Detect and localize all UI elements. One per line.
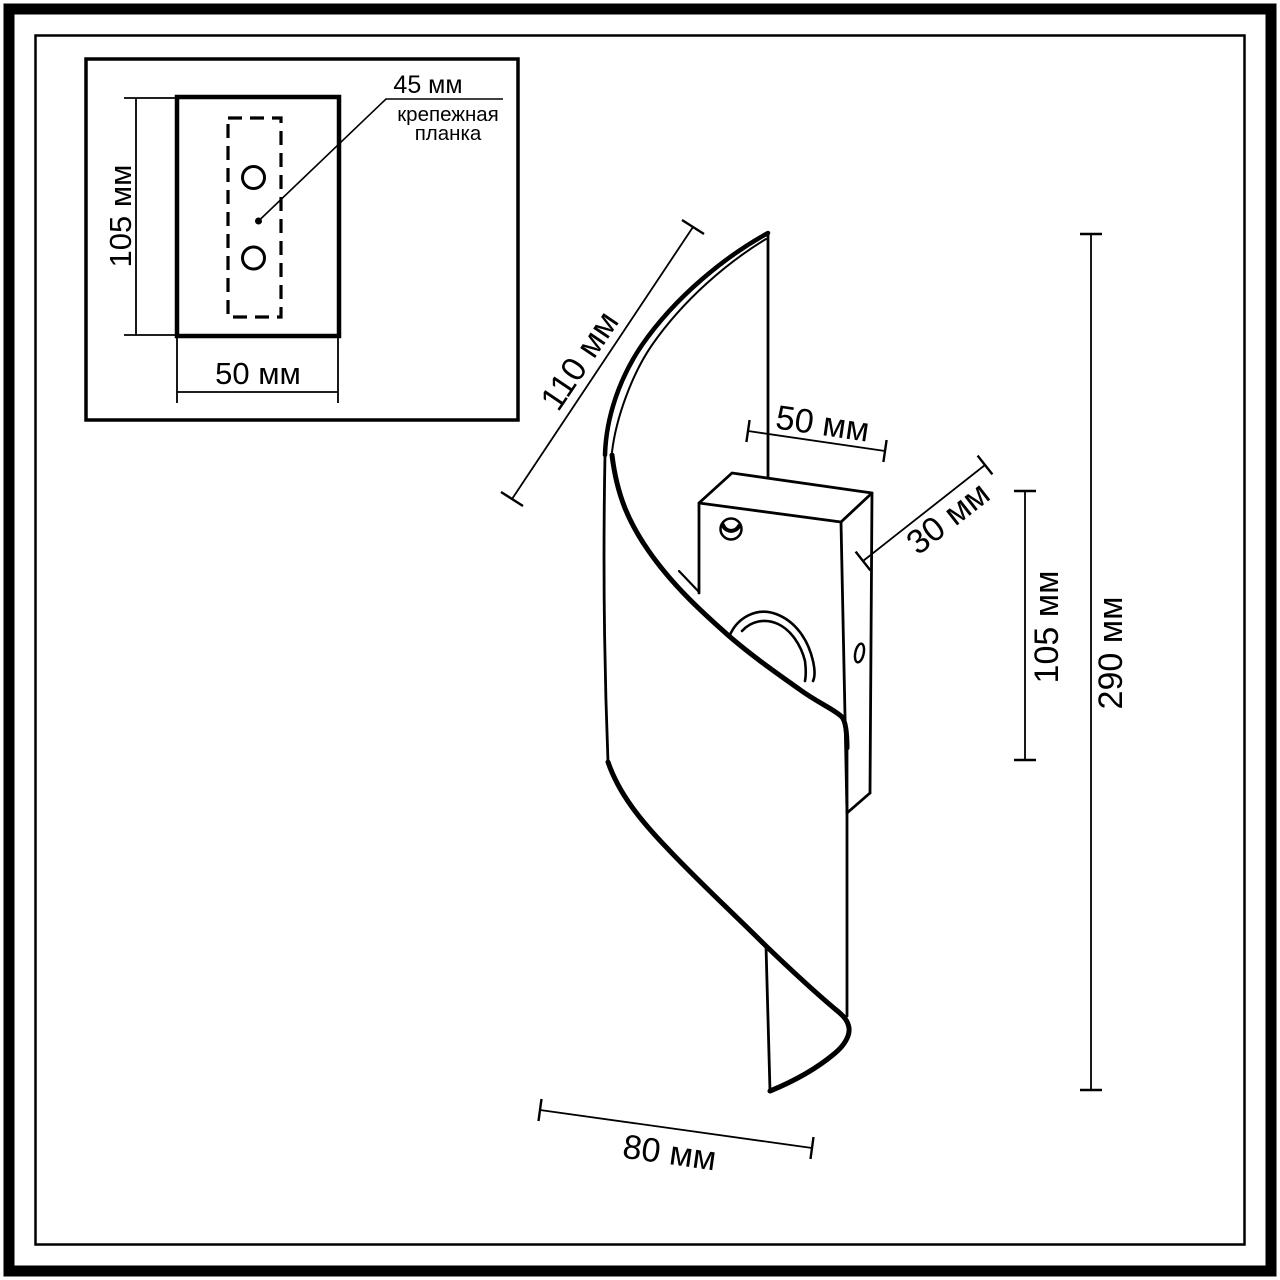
box-back-right-edge [870,493,872,793]
inset-plate-width-label: 50 мм [215,356,301,391]
technical-drawing-page: 105 мм 50 мм 45 мм крепежная планка [0,0,1280,1280]
shade-left-silhouette [604,455,608,762]
backplate-depth-dimension: 30 мм [856,456,997,571]
total-height-dimension: 290 мм [1080,234,1130,1090]
drawing-canvas: 105 мм 50 мм 45 мм крепежная планка [0,0,1280,1280]
shade-lower-front-edge [608,762,849,1091]
shade-bottom-tip-edge [766,946,770,1091]
backplate-height-dimension: 105 мм [1014,491,1066,760]
dim-label-backplate-height: 105 мм [1028,571,1066,684]
box-top-face [699,473,872,522]
side-cable-hole [853,643,865,663]
inset-height-dimension: 105 мм [103,98,177,335]
shade-top-edge-outer [605,233,768,455]
hole-spacing-label: 45 мм [393,71,462,99]
dim-label-total-height: 290 мм [1092,597,1130,710]
backplate-box [679,473,872,813]
shade-top-edge-inner [612,239,766,452]
dim-line [512,227,693,499]
mounting-plate-outline [177,97,339,336]
sconce-main-view [604,233,872,1091]
screw-hole-bottom [243,247,265,269]
screw-slot [723,525,739,531]
outer-frame-border [9,9,1271,1271]
shade-upper-front-edge [612,455,847,748]
screw-hole-top [243,167,265,189]
dim-label-shade-width: 80 мм [620,1128,718,1179]
inset-width-dimension: 50 мм [177,338,338,403]
shade-length-dimension: 110 мм [501,220,704,506]
inset-plate-height-label: 105 мм [103,165,138,268]
dim-label-backplate-width: 50 мм [773,399,872,450]
mounting-bar-dashed-outline [228,118,281,317]
dim-label-backplate-depth: 30 мм [899,474,996,562]
mounting-bar-caption-line2: планка [415,122,482,145]
inset-panel: 105 мм 50 мм 45 мм крепежная планка [86,59,518,420]
box-bottom-right-edge [847,793,870,813]
shade-width-dimension: 80 мм [539,1099,814,1178]
